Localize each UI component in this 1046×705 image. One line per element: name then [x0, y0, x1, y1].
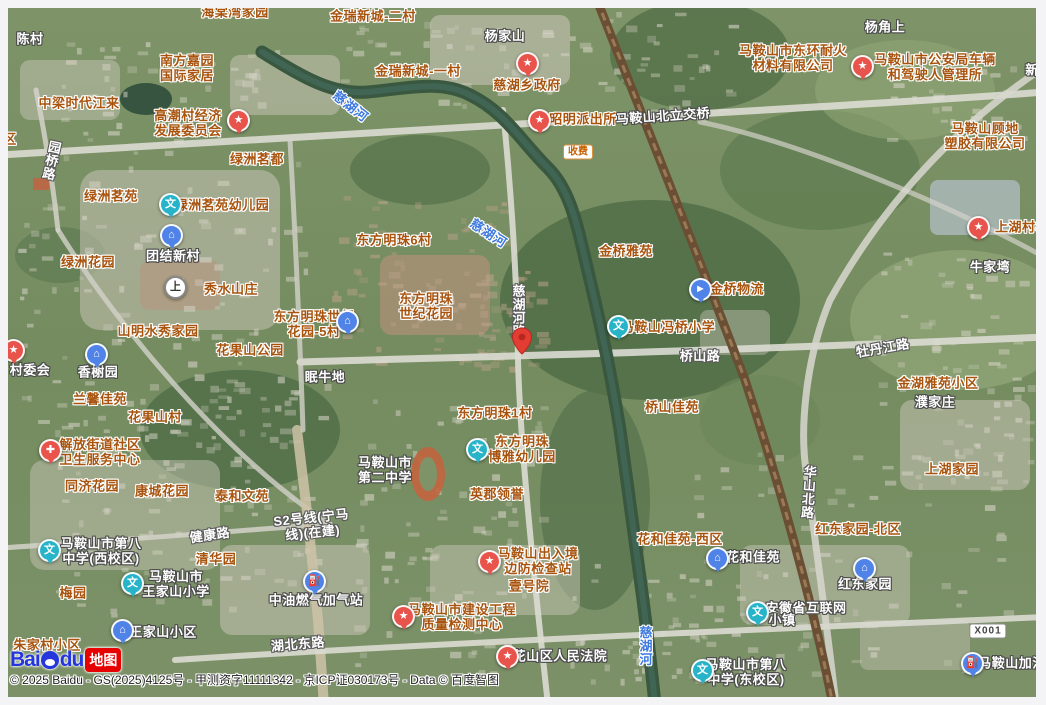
baidu-logo-du: du — [60, 648, 84, 672]
star-poi-icon[interactable]: ★ — [516, 52, 539, 75]
star-poi-icon[interactable]: ★ — [478, 550, 501, 573]
star-poi-icon[interactable]: ★ — [851, 55, 874, 78]
gas-poi-icon[interactable]: ⛽ — [961, 652, 984, 675]
estate-poi-icon[interactable]: ⌂ — [853, 557, 876, 580]
map-frame-left — [0, 0, 8, 705]
logistics-poi-icon[interactable]: ► — [689, 278, 712, 301]
map-frame-top — [0, 0, 1046, 8]
gas-poi-icon[interactable]: ⛽ — [303, 570, 326, 593]
map-pin-icon[interactable] — [511, 327, 533, 360]
school-poi-icon[interactable]: 文 — [38, 539, 61, 562]
map-frame-bottom — [0, 697, 1046, 705]
hospital-poi-icon[interactable]: ✚ — [39, 439, 62, 462]
school-poi-icon[interactable]: 文 — [691, 659, 714, 682]
baidu-logo-bai: Bai — [10, 648, 40, 672]
school-poi-icon[interactable]: 文 — [159, 193, 182, 216]
map-copyright: © 2025 Baidu - GS(2025)4125号 - 甲测资字11111… — [10, 671, 499, 688]
star-poi-icon[interactable]: ★ — [528, 109, 551, 132]
star-poi-icon[interactable]: ★ — [227, 109, 250, 132]
baidu-paw-icon — [41, 651, 59, 669]
school-poi-icon[interactable]: 文 — [466, 438, 489, 461]
star-poi-icon[interactable]: ★ — [967, 216, 990, 239]
baidu-map-tag: 地图 — [85, 648, 121, 672]
estate-poi-icon[interactable]: ⌂ — [336, 310, 359, 333]
baidu-logo[interactable]: Bai du 地图 — [10, 648, 121, 672]
toll-badge: 收费 — [563, 145, 593, 160]
estate-poi-icon[interactable]: ⌂ — [85, 343, 108, 366]
star-poi-icon[interactable]: ★ — [392, 605, 415, 628]
school-poi-icon[interactable]: 文 — [607, 315, 630, 338]
baidu-map-satellite-view[interactable]: 海棠湾家园金瑞新城-二村南方嘉园 国际家居中梁时代江来高潮村经济 发展委员会金瑞… — [0, 0, 1046, 705]
estate-poi-icon[interactable]: ⌂ — [160, 224, 183, 247]
map-frame-right — [1036, 0, 1046, 705]
school-poi-icon[interactable]: 文 — [121, 572, 144, 595]
road-shield-badge: X001 — [969, 624, 1006, 639]
metro-poi-icon[interactable]: 上 — [164, 276, 187, 299]
estate-poi-icon[interactable]: ⌂ — [706, 547, 729, 570]
star-poi-icon[interactable]: ★ — [496, 645, 519, 668]
school-poi-icon[interactable]: 文 — [746, 601, 769, 624]
estate-poi-icon[interactable]: ⌂ — [111, 619, 134, 642]
